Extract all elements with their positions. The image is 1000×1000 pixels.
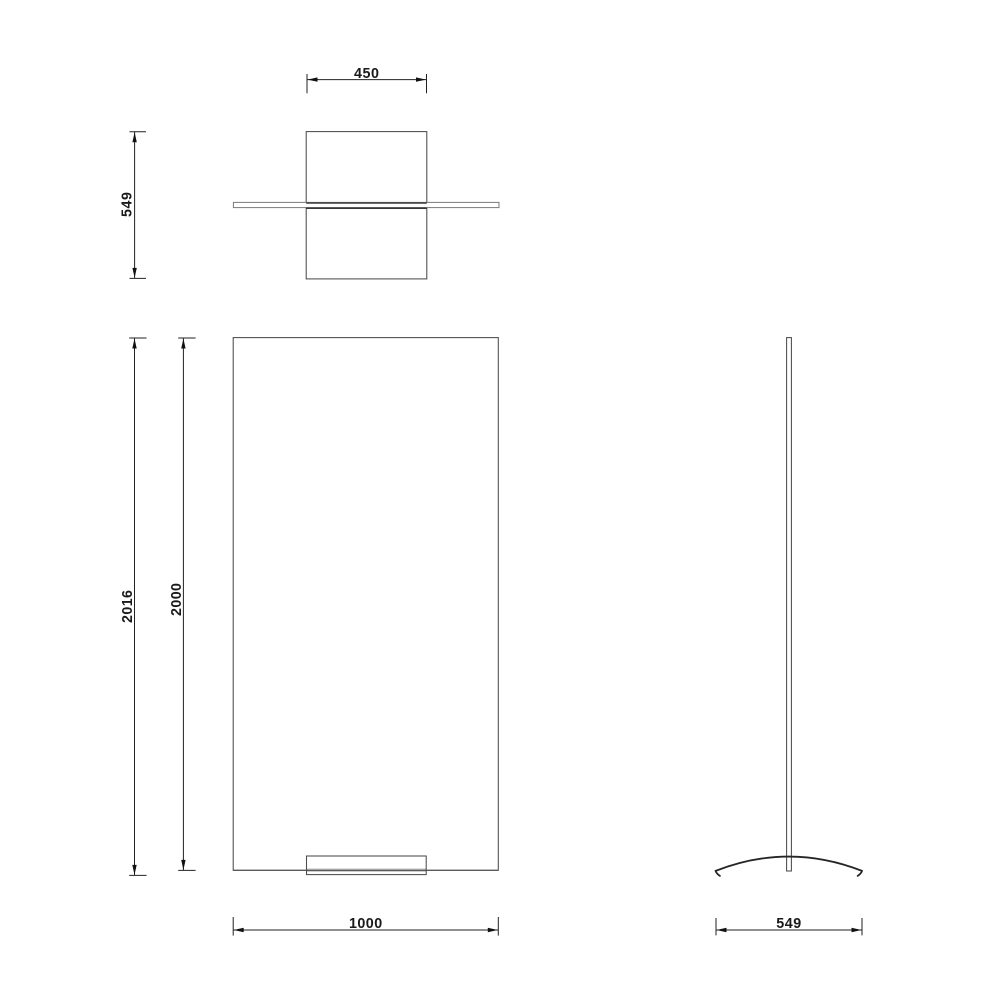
svg-text:2000: 2000 [169, 583, 185, 616]
svg-text:549: 549 [119, 191, 135, 217]
svg-text:1000: 1000 [349, 916, 383, 932]
svg-text:549: 549 [776, 916, 802, 932]
svg-text:2016: 2016 [120, 590, 136, 623]
svg-text:450: 450 [354, 66, 380, 82]
